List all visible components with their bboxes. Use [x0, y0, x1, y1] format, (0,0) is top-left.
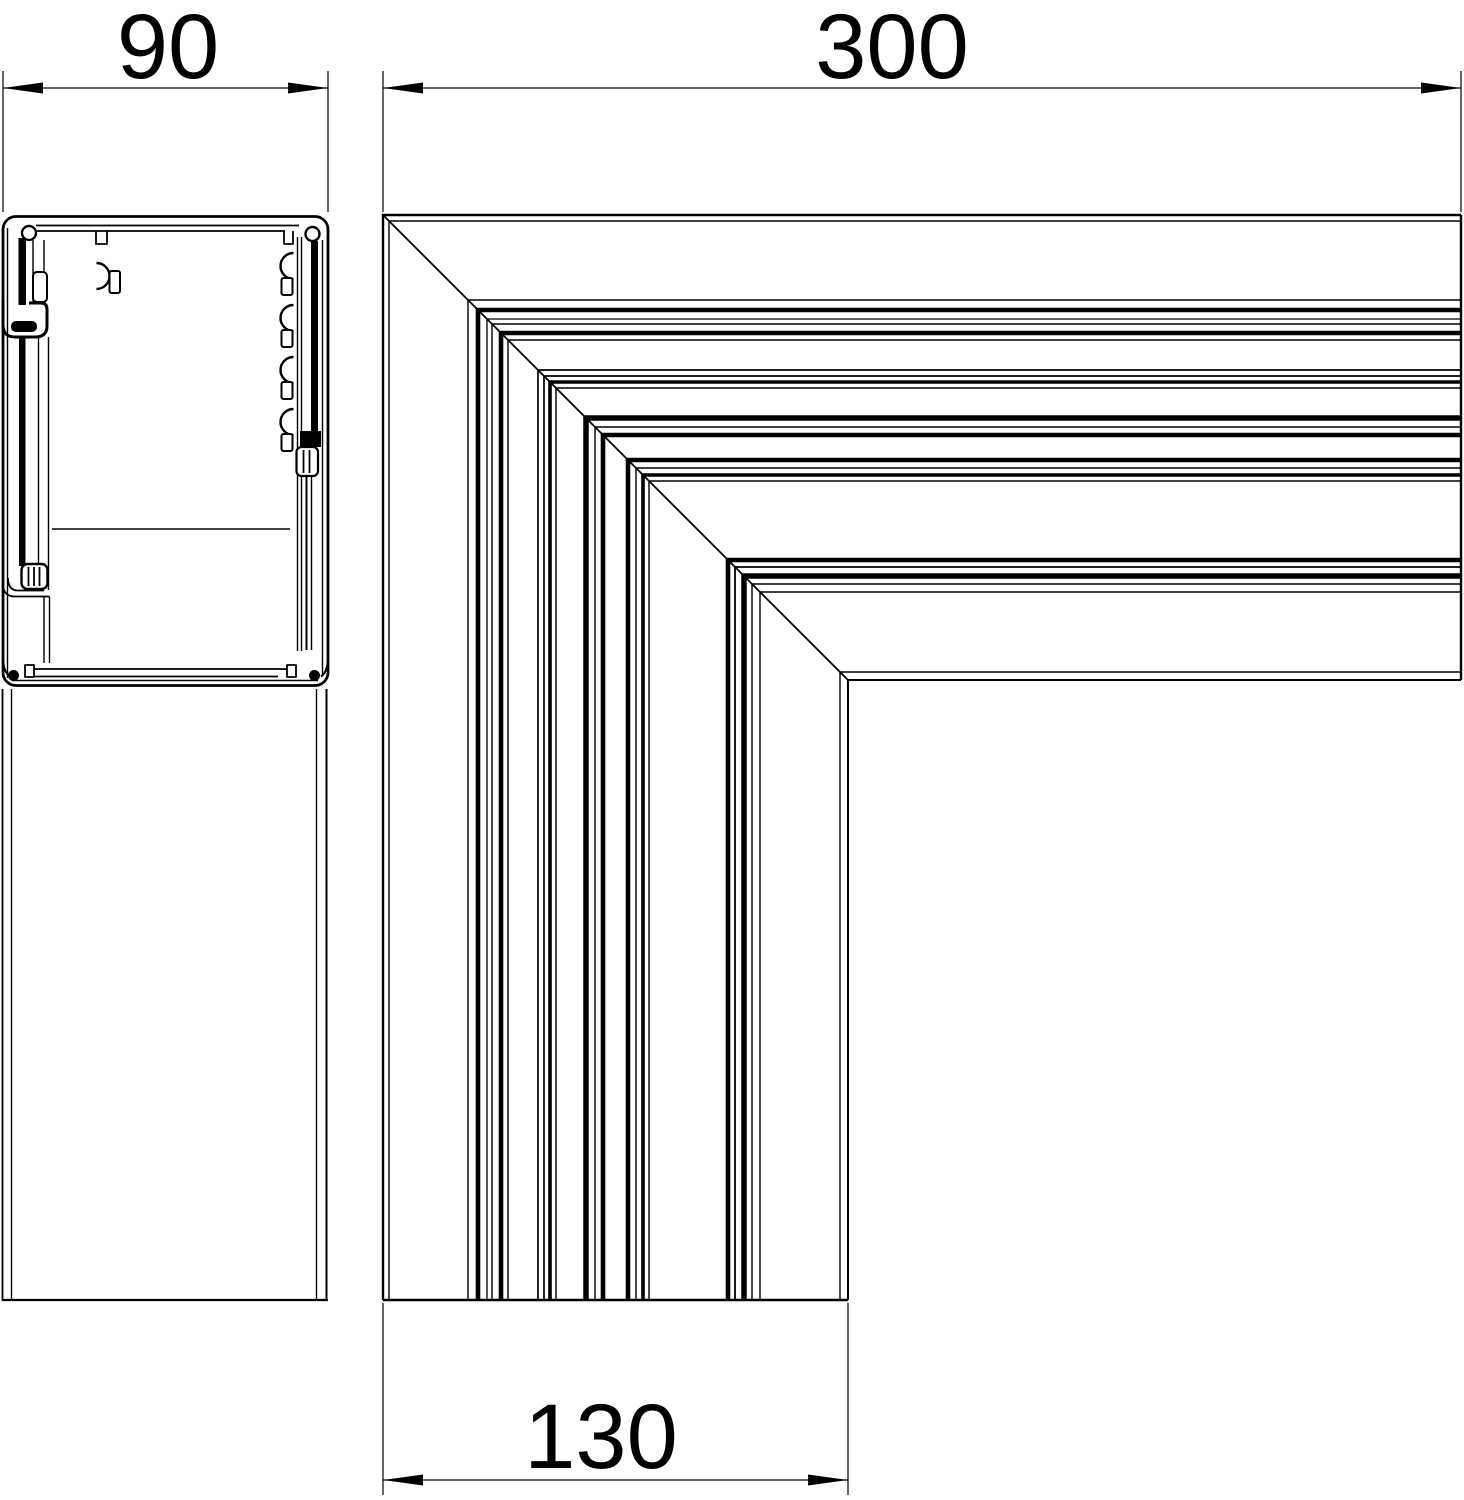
right-retainer-tab — [282, 278, 293, 295]
duct-body-elevation — [2, 689, 329, 1300]
dim-arrow-left-icon — [383, 1475, 423, 1486]
right-foot — [309, 670, 320, 681]
right-retainer-bump — [281, 305, 294, 331]
flat-angle-technical-drawing: 90 300 130 — [0, 0, 1464, 1500]
right-retainer-bump — [281, 253, 294, 279]
profile-bottom-plate — [25, 665, 296, 677]
dim-arrow-left-icon — [383, 83, 423, 94]
dim-arrow-right-icon — [1421, 83, 1461, 94]
dim-arrow-right-icon — [808, 1475, 848, 1486]
flat-angle-top-view — [383, 215, 1461, 1300]
right-knurl-clip — [297, 447, 319, 476]
dimension-130-label: 130 — [524, 1386, 678, 1488]
dimension-300: 300 — [383, 0, 1461, 212]
dim-arrow-left-icon — [3, 83, 43, 94]
profile-lid — [22, 226, 320, 245]
lid-curl-left — [22, 226, 36, 240]
left-retainer-tab — [110, 271, 121, 293]
profile-right-wall — [281, 237, 329, 681]
profile-left-wall — [3, 238, 120, 681]
dimension-90-label: 90 — [117, 0, 219, 98]
left-retainer-bump — [97, 263, 110, 289]
lid-curl-right — [306, 227, 320, 241]
dimension-130: 130 — [383, 1303, 848, 1495]
miter-diagonal — [383, 215, 848, 680]
right-retainer-tab — [282, 330, 293, 347]
dimension-90: 90 — [3, 0, 328, 212]
right-retainer-tab — [282, 434, 293, 451]
right-retainer-bump — [281, 409, 294, 435]
right-retainer-tab — [282, 382, 293, 399]
dimension-300-label: 300 — [815, 0, 969, 98]
profile-outer-shell — [3, 217, 328, 686]
corner-inner-edge — [848, 680, 1461, 1300]
cross-section-view — [2, 217, 329, 1301]
right-retainer-bump — [281, 357, 294, 383]
technical-drawing-page: 90 300 130 — [0, 0, 1464, 1500]
left-foot — [8, 670, 19, 681]
left-clip-block — [33, 272, 47, 302]
dim-arrow-right-icon — [288, 83, 328, 94]
